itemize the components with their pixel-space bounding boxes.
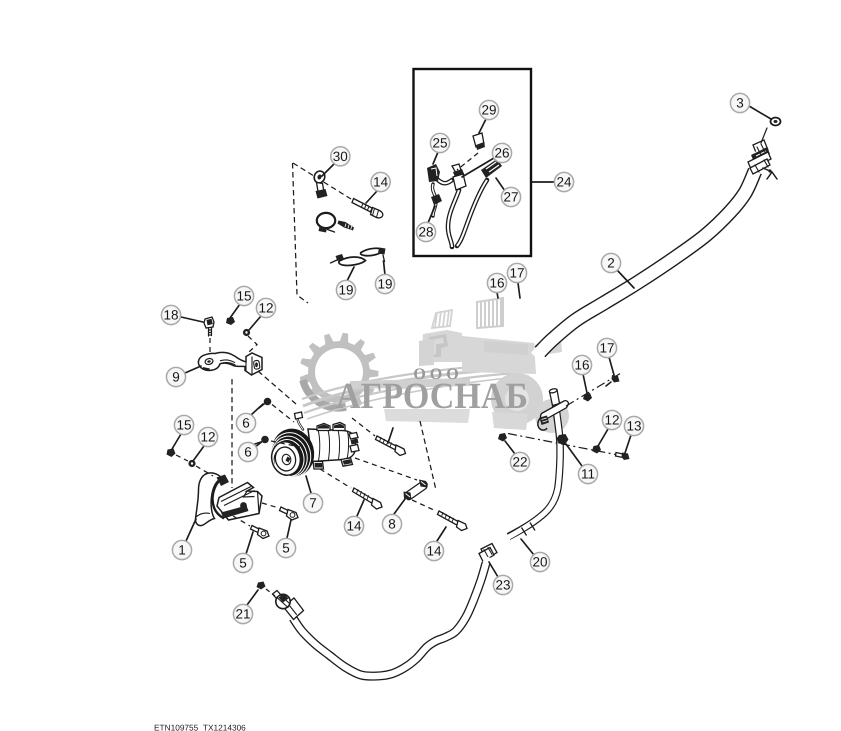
svg-text:17: 17 [509, 266, 524, 281]
svg-text:12: 12 [604, 413, 619, 428]
svg-text:8: 8 [388, 517, 396, 532]
svg-text:5: 5 [239, 556, 247, 571]
svg-text:18: 18 [163, 308, 178, 323]
svg-text:22: 22 [512, 455, 527, 470]
svg-text:1: 1 [178, 543, 186, 558]
svg-text:14: 14 [373, 175, 389, 190]
svg-text:ETN109755 TX1214306: ETN109755 TX1214306 [154, 723, 246, 731]
svg-text:17: 17 [599, 341, 614, 356]
svg-text:13: 13 [626, 419, 641, 434]
svg-text:2: 2 [607, 256, 615, 271]
svg-text:7: 7 [309, 496, 317, 511]
svg-text:24: 24 [556, 175, 572, 190]
svg-text:6: 6 [244, 445, 252, 460]
svg-text:23: 23 [495, 578, 510, 593]
svg-text:26: 26 [494, 146, 509, 161]
svg-text:16: 16 [489, 276, 504, 291]
svg-text:30: 30 [333, 149, 348, 164]
svg-text:14: 14 [426, 544, 442, 559]
svg-text:5: 5 [282, 541, 290, 556]
svg-text:11: 11 [581, 467, 595, 482]
svg-text:28: 28 [418, 225, 433, 240]
svg-text:6: 6 [242, 416, 250, 431]
svg-text:12: 12 [200, 430, 215, 445]
svg-text:3: 3 [736, 96, 744, 111]
svg-text:12: 12 [258, 301, 273, 316]
svg-text:29: 29 [481, 103, 496, 118]
svg-text:19: 19 [338, 283, 353, 298]
svg-text:16: 16 [574, 358, 589, 373]
svg-text:19: 19 [377, 277, 392, 292]
svg-text:15: 15 [236, 289, 251, 304]
svg-text:15: 15 [176, 418, 191, 433]
svg-text:9: 9 [172, 370, 180, 385]
svg-text:25: 25 [432, 136, 447, 151]
svg-text:АГРОСНАБ: АГРОСНАБ [336, 376, 528, 417]
svg-text:21: 21 [235, 607, 250, 622]
svg-text:20: 20 [532, 555, 547, 570]
svg-text:14: 14 [346, 519, 362, 534]
svg-text:27: 27 [503, 190, 518, 205]
